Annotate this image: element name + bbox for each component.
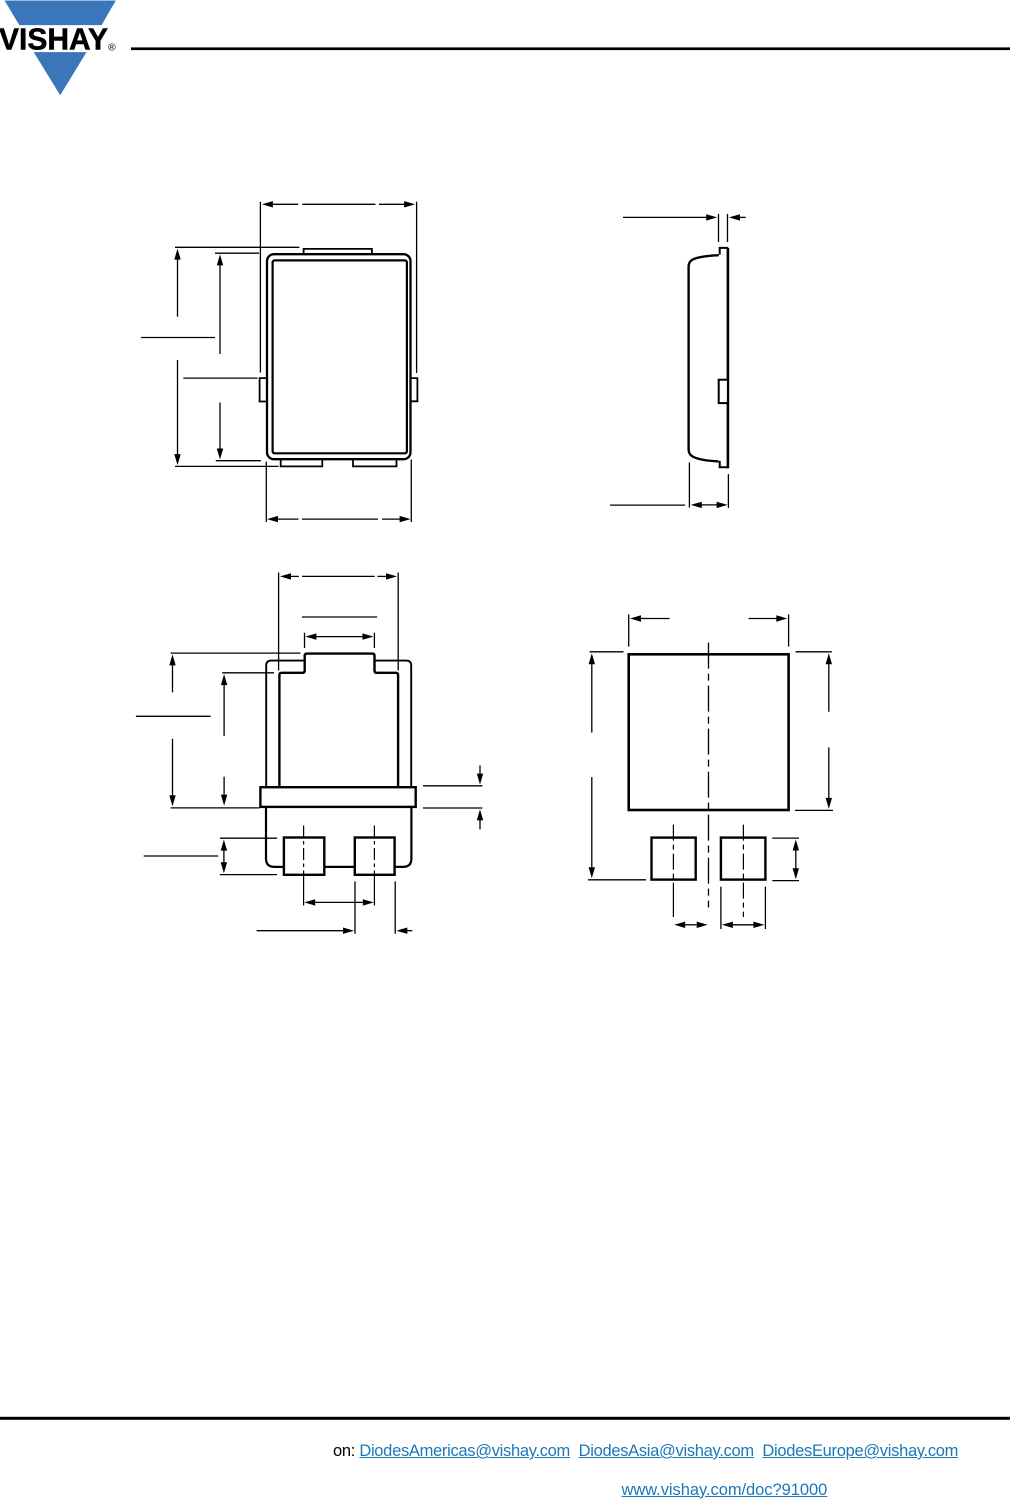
svg-text:VISHAY: VISHAY [0, 23, 108, 56]
svg-text:®: ® [108, 41, 116, 53]
